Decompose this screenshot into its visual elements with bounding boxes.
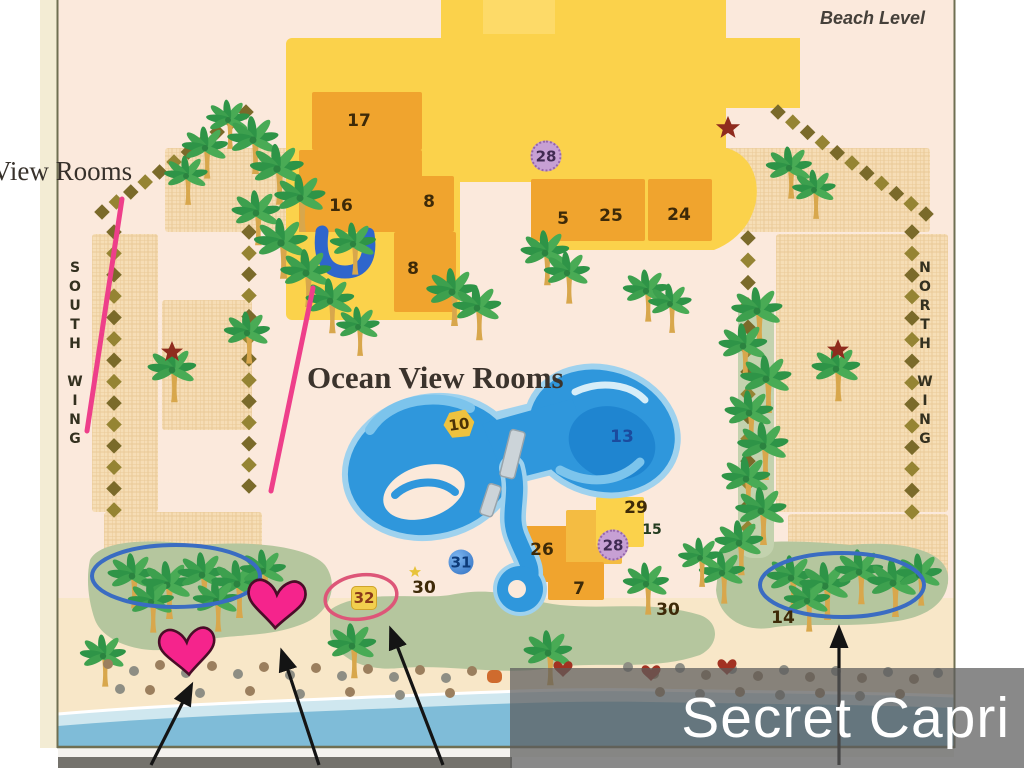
- ocean-view-rooms-label: Ocean View Rooms: [307, 360, 564, 396]
- badge-28-top: 28: [531, 141, 562, 172]
- slide-canvas: Beach Level View Rooms Ocean View Rooms …: [0, 0, 1024, 768]
- beach-level-label: Beach Level: [820, 8, 925, 29]
- room-label-30-right: 30: [656, 600, 680, 620]
- room-label-17: 17: [347, 111, 371, 131]
- room-label-7: 7: [573, 579, 585, 599]
- room-label-8b: 8: [407, 259, 419, 279]
- caption-text: Secret Capri: [681, 690, 1010, 747]
- caption-bar: Secret Capri: [510, 668, 1024, 768]
- room-label-24: 24: [667, 205, 691, 225]
- room-label-26: 26: [530, 540, 554, 560]
- room-label-30-left: 30: [412, 578, 436, 598]
- room-label-5: 5: [557, 209, 569, 229]
- room-label-25: 25: [599, 206, 623, 226]
- room-label-14: 14: [771, 608, 795, 628]
- badge-28-bottom: 28: [598, 530, 629, 561]
- room-label-15: 15: [642, 522, 661, 538]
- room-label-8a: 8: [423, 192, 435, 212]
- view-rooms-label: View Rooms: [0, 156, 132, 187]
- badge-32: 32: [351, 586, 377, 610]
- pool-label-13: 13: [610, 427, 634, 447]
- south-wing-label: SOUTH WING: [68, 260, 82, 450]
- room-label-29: 29: [624, 498, 648, 518]
- badge-31: 31: [449, 550, 474, 575]
- north-wing-label: NORTH WING: [918, 260, 932, 450]
- room-label-16: 16: [329, 196, 353, 216]
